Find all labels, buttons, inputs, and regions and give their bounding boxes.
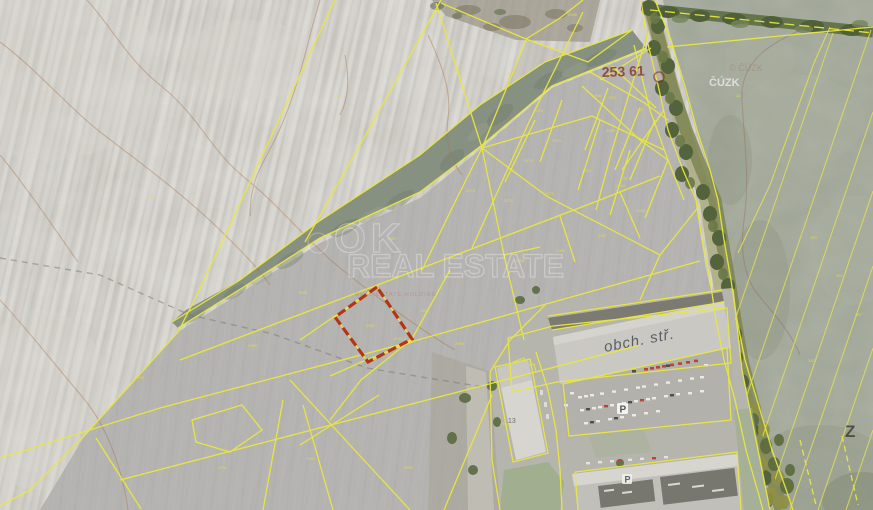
svg-text:2985: 2985 <box>568 12 578 17</box>
svg-text:2957: 2957 <box>420 308 430 313</box>
svg-text:2972: 2972 <box>504 198 514 203</box>
svg-text:2974: 2974 <box>524 158 534 163</box>
svg-text:2969: 2969 <box>606 128 616 133</box>
svg-text:381: 381 <box>808 358 815 363</box>
svg-text:2992: 2992 <box>306 456 316 461</box>
svg-text:2941: 2941 <box>334 94 344 99</box>
svg-text:2975: 2975 <box>552 138 562 143</box>
svg-text:26: 26 <box>736 93 741 98</box>
svg-text:P: P <box>620 405 627 416</box>
svg-text:2941: 2941 <box>148 194 158 199</box>
svg-text:2967: 2967 <box>598 233 608 238</box>
svg-text:2989: 2989 <box>248 343 258 348</box>
svg-text:2956: 2956 <box>455 341 465 346</box>
svg-text:2990: 2990 <box>135 375 145 380</box>
svg-text:105: 105 <box>608 95 616 100</box>
svg-text:2963: 2963 <box>636 208 646 213</box>
svg-text:391: 391 <box>836 273 843 278</box>
svg-text:2982: 2982 <box>366 323 376 328</box>
svg-text:387: 387 <box>855 312 862 317</box>
svg-text:2964: 2964 <box>616 183 626 188</box>
svg-text:2968: 2968 <box>592 93 602 98</box>
svg-text:2991: 2991 <box>218 465 228 470</box>
svg-text:2977: 2977 <box>620 176 631 181</box>
svg-text:REAL ESTATE HOLDING: REAL ESTATE HOLDING <box>355 292 437 298</box>
svg-text:2970: 2970 <box>582 168 592 173</box>
svg-text:Z: Z <box>845 422 855 441</box>
svg-text:ČÚZK: ČÚZK <box>709 76 740 89</box>
svg-text:393: 393 <box>810 235 817 240</box>
svg-text:2988: 2988 <box>298 290 308 295</box>
svg-text:2973: 2973 <box>466 188 476 193</box>
svg-text:2976: 2976 <box>534 108 544 113</box>
svg-text:2954: 2954 <box>500 421 510 426</box>
svg-text:2971: 2971 <box>545 191 555 196</box>
svg-text:253 61: 253 61 <box>602 63 646 80</box>
svg-text:2982/1: 2982/1 <box>394 336 407 341</box>
svg-text:REAL ESTATE: REAL ESTATE <box>347 248 564 284</box>
svg-text:P: P <box>625 475 631 485</box>
svg-text:103: 103 <box>636 107 644 112</box>
svg-text:2993: 2993 <box>404 465 414 470</box>
svg-text:2952: 2952 <box>545 366 555 371</box>
svg-text:© ČÚZK: © ČÚZK <box>729 63 763 73</box>
svg-text:2977: 2977 <box>508 71 518 76</box>
svg-text:2985: 2985 <box>452 68 462 73</box>
